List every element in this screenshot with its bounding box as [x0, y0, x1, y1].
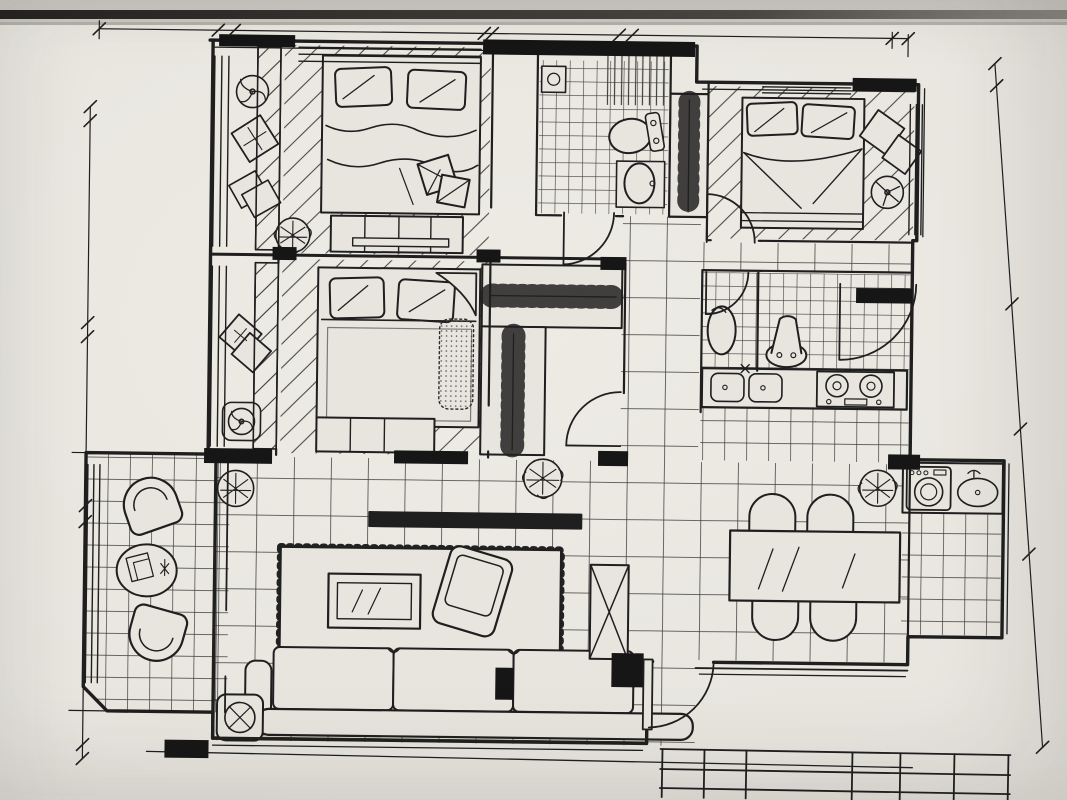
- floor-plan-photo: [0, 0, 1067, 800]
- dining-chair: [749, 494, 795, 536]
- fan-icon: [871, 176, 903, 208]
- bedroom3-wardrobe: [669, 94, 708, 217]
- kitchen-counter: [702, 364, 908, 410]
- hallway-tiles-upper: [700, 242, 912, 273]
- title-block-table: [660, 749, 1011, 800]
- dining-chair: [752, 599, 798, 641]
- dim-line-right: [987, 64, 1051, 748]
- dining-chair: [810, 599, 856, 641]
- bathroom-top-window-slats: [606, 49, 669, 106]
- washing-machine-icon: [906, 467, 951, 511]
- sofa-side-table: [217, 694, 264, 741]
- coffee-table: [328, 574, 421, 629]
- dining-table: [729, 530, 900, 602]
- fan-icon: [236, 75, 268, 107]
- bedroom2-rug: [439, 319, 474, 409]
- bedroom3-bed: [741, 98, 865, 229]
- terrace-line: [146, 751, 912, 767]
- fan-icon: [222, 402, 260, 440]
- dining-chair: [807, 494, 853, 536]
- shoe-cabinet: [590, 565, 629, 659]
- plant-icon: [217, 470, 253, 506]
- kitchen-tiles: [700, 407, 909, 463]
- hallway-tiles: [620, 216, 701, 462]
- floor-plan-drawing: [0, 0, 1067, 800]
- stove-icon: [817, 372, 894, 408]
- balcony-table: [116, 544, 177, 597]
- bedroom2-dresser: [316, 417, 434, 452]
- door-dressing-lower: [566, 391, 621, 446]
- bedroom1-bed: [321, 55, 481, 214]
- laundry-tiles: [901, 513, 1001, 636]
- pedestal-sink-icon: [616, 161, 665, 208]
- tv-console: [369, 512, 581, 529]
- paper-edge: [0, 0, 1067, 25]
- dressing-wardrobe: [480, 264, 622, 456]
- washbasin-small: [542, 66, 566, 92]
- bedroom1-dresser: [331, 216, 463, 254]
- laundry-counter: [902, 463, 1003, 514]
